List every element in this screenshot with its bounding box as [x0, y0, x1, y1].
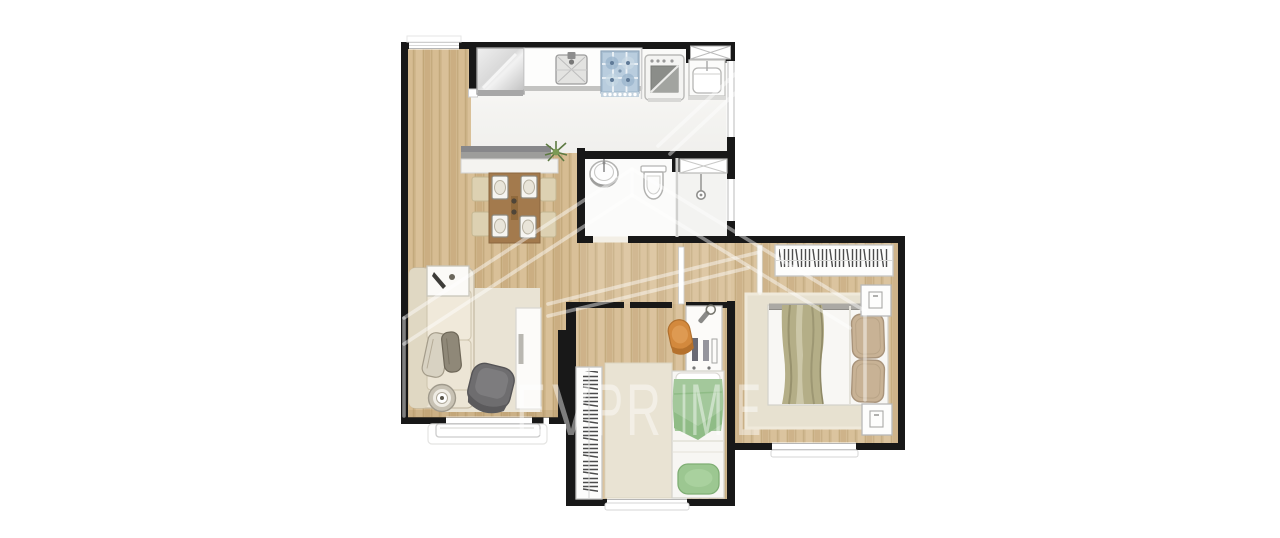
svg-text:E: E — [516, 370, 546, 451]
svg-text:E: E — [736, 370, 761, 451]
svg-text:R: R — [626, 370, 661, 451]
svg-text:M: M — [690, 370, 723, 451]
svg-text:P: P — [595, 370, 623, 451]
svg-text:V: V — [552, 370, 590, 451]
svg-text:I: I — [680, 370, 688, 451]
